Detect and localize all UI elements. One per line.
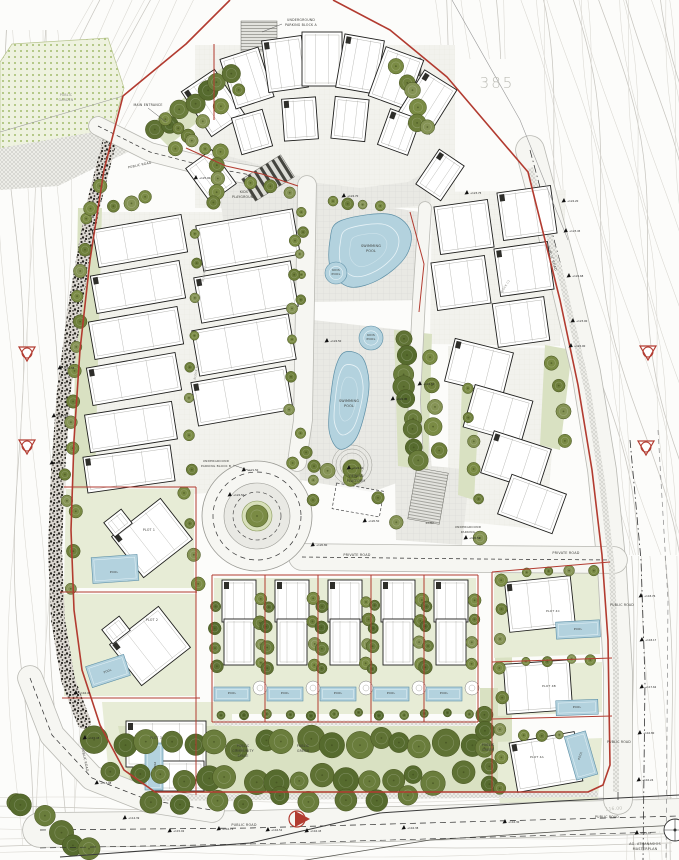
- tree-symbol-center: [191, 140, 193, 142]
- tree-symbol-center: [220, 105, 222, 107]
- plan-label: PUBLIC ROAD: [231, 823, 256, 827]
- elevation-value: +116.43: [310, 829, 322, 833]
- tree-symbol-center: [214, 628, 216, 630]
- tree-symbol-center: [365, 601, 367, 603]
- tree-symbol-center: [280, 741, 282, 743]
- plan-label: POOL: [110, 570, 119, 574]
- plan-label: PLOT 4C: [546, 609, 560, 613]
- plan-label: PLOT 1: [143, 528, 155, 532]
- masterplan-canvas: +125.00+124.70+123.75+124.50+124.50+124.…: [0, 0, 679, 860]
- tree-symbol-center: [473, 468, 475, 470]
- elevation-value: +123.00: [576, 319, 588, 323]
- stair-core: [264, 42, 270, 50]
- tree-symbol-center: [467, 387, 469, 389]
- tree-symbol-center: [365, 662, 367, 664]
- elevation-value: +116.79: [55, 461, 67, 465]
- stair-core: [224, 582, 229, 589]
- tree-symbol-center: [484, 730, 486, 732]
- tree-symbol-center: [72, 845, 74, 847]
- tree-symbol-center: [378, 715, 380, 717]
- elevation-value: +120.80: [316, 543, 328, 547]
- tree-symbol-center: [412, 774, 414, 776]
- plan-label: PLOT 2: [146, 618, 158, 622]
- tree-symbol-center: [412, 89, 414, 91]
- tree-symbol-center: [256, 781, 258, 783]
- tree-symbol-center: [368, 619, 370, 621]
- tree-symbol-center: [445, 742, 447, 744]
- tree-symbol-center: [266, 647, 268, 649]
- building-outline: [302, 32, 342, 86]
- plan-label: POOL: [228, 691, 237, 695]
- tree-symbol-center: [131, 203, 133, 205]
- tree-symbol-center: [208, 778, 210, 780]
- tree-symbol-center: [178, 109, 180, 111]
- tree-symbol-center: [467, 417, 469, 419]
- plan-label: POOL: [440, 691, 449, 695]
- tree-symbol-center: [321, 774, 323, 776]
- plan-label: MAIN ENTRANCE: [133, 103, 162, 107]
- tree-symbol-center: [204, 148, 206, 150]
- tree-symbol-center: [75, 510, 77, 512]
- tree-symbol-center: [488, 766, 490, 768]
- tree-symbol-center: [305, 452, 307, 454]
- tree-symbol-center: [191, 469, 193, 471]
- tree-symbol-center: [61, 832, 63, 834]
- stair-core: [507, 584, 513, 591]
- plan-label: AG. ATHANASIOS: [629, 842, 661, 846]
- tree-symbol-center: [299, 253, 301, 255]
- stair-core: [383, 582, 388, 589]
- tree-symbol-center: [242, 803, 244, 805]
- tree-symbol-center: [381, 737, 383, 739]
- plan-label: PUBLIC: [237, 744, 250, 748]
- elevation-value: +123.75: [470, 191, 482, 195]
- tree-symbol-center: [84, 249, 86, 251]
- tree-symbol-center: [188, 434, 190, 436]
- plan-label: PUBLIC ROAD: [595, 815, 619, 819]
- terrace-table: [465, 681, 479, 695]
- tree-symbol-center: [347, 203, 349, 205]
- plan-label: POOL: [366, 249, 376, 253]
- elevation-value: +123.45: [569, 229, 581, 233]
- tree-symbol-center: [313, 465, 315, 467]
- tree-symbol-center: [426, 606, 428, 608]
- tree-symbol-center: [159, 773, 161, 775]
- tree-symbol-center: [300, 211, 302, 213]
- building-outline: [431, 255, 491, 310]
- tree-symbol-center: [568, 570, 570, 572]
- elevation-value: +120.50: [469, 536, 481, 540]
- plan-label: PRIVATE ROAD: [343, 553, 370, 557]
- plan-label: POOL: [334, 691, 343, 695]
- elevation-value: +117.92: [57, 414, 69, 418]
- building-footprint: [381, 580, 415, 622]
- building-footprint: [434, 199, 494, 254]
- plan-label: PRIVATE ROAD: [552, 551, 579, 555]
- tree-symbol-center: [498, 667, 500, 669]
- tree-symbol-center: [427, 645, 429, 647]
- tree-symbol-center: [194, 233, 196, 235]
- tree-symbol-center: [150, 801, 152, 803]
- tree-symbol-center: [447, 712, 449, 714]
- tree-symbol-center: [293, 274, 295, 276]
- tree-symbol-center: [345, 780, 347, 782]
- tree-symbol-center: [291, 339, 293, 341]
- plan-label: RAMP: [426, 521, 435, 525]
- stair-core: [85, 458, 91, 466]
- plan-label: KIDS: [240, 190, 248, 194]
- elevation-value: +116.24: [642, 778, 654, 782]
- tree-symbol-center: [369, 780, 371, 782]
- tree-symbol-center: [74, 370, 76, 372]
- elevation-value: +120.50: [368, 519, 380, 523]
- tree-symbol-center: [321, 627, 323, 629]
- tree-symbol-center: [230, 73, 232, 75]
- tree-symbol-center: [72, 401, 74, 403]
- elevation-value: +122.00: [574, 344, 586, 348]
- tree-symbol-center: [216, 191, 218, 193]
- tree-symbol-center: [327, 470, 329, 472]
- building-outline: [331, 96, 369, 141]
- tree-symbol-center: [523, 734, 525, 736]
- elevation-value: +124.50: [352, 466, 364, 470]
- tree-symbol-center: [279, 795, 281, 797]
- tree-symbol-center: [379, 205, 381, 207]
- north-arrow-icon: [674, 829, 677, 832]
- building-footprint: [436, 619, 466, 665]
- tree-symbol-center: [207, 90, 209, 92]
- tree-symbol-center: [484, 714, 486, 716]
- tree-symbol-center: [202, 120, 204, 122]
- tree-symbol-center: [474, 599, 476, 601]
- building-footprint: [431, 255, 491, 310]
- plan-label: GREEN: [482, 748, 495, 752]
- elevation-value: +124.68: [572, 274, 584, 278]
- tree-symbol-center: [359, 744, 361, 746]
- tree-symbol-center: [432, 426, 434, 428]
- tree-symbol-center: [216, 665, 218, 667]
- tree-symbol-center: [372, 628, 374, 630]
- tree-symbol-center: [314, 643, 316, 645]
- tree-symbol-center: [294, 240, 296, 242]
- tree-symbol-center: [70, 421, 72, 423]
- elevation-value: +115.87: [640, 831, 652, 835]
- building-footprint: [302, 32, 342, 86]
- building-outline: [436, 619, 466, 665]
- tree-symbol-center: [113, 205, 115, 207]
- tree-symbol-center: [266, 667, 268, 669]
- building-outline: [492, 297, 550, 348]
- plan-label: UNDERGROUND: [455, 525, 482, 529]
- plan-label: PUBLIC: [60, 93, 73, 97]
- tree-symbol-center: [216, 81, 218, 83]
- stair-core: [436, 582, 441, 589]
- tree-symbol-center: [471, 663, 473, 665]
- tree-symbol-center: [541, 735, 543, 737]
- tree-symbol-center: [374, 604, 376, 606]
- tree-symbol-center: [417, 107, 419, 109]
- tree-symbol-center: [195, 103, 197, 105]
- plan-label: 385: [480, 74, 515, 92]
- tree-symbol-center: [189, 523, 191, 525]
- plan-label: PLAYGROUND: [232, 195, 256, 199]
- tree-symbol-center: [333, 713, 335, 715]
- tree-symbol-center: [499, 638, 501, 640]
- tree-symbol-center: [429, 356, 431, 358]
- tree-symbol-center: [376, 800, 378, 802]
- tree-symbol-center: [144, 196, 146, 198]
- stair-core: [128, 723, 133, 730]
- tree-symbol-center: [213, 741, 215, 743]
- tree-symbol-center: [501, 608, 503, 610]
- tree-symbol-center: [188, 397, 190, 399]
- tree-symbol-center: [66, 500, 68, 502]
- tree-symbol-center: [197, 583, 199, 585]
- tree-symbol-center: [474, 619, 476, 621]
- tree-symbol-center: [501, 697, 503, 699]
- plan-label: PUBLIC: [482, 743, 495, 747]
- tree-symbol-center: [250, 182, 252, 184]
- tree-symbol-center: [214, 647, 216, 649]
- plan-label: PUBLIC ROAD: [607, 740, 631, 744]
- tree-symbol-center: [499, 729, 501, 731]
- tree-symbol-center: [425, 666, 427, 668]
- tree-symbol-center: [70, 588, 72, 590]
- tree-symbol-center: [551, 362, 553, 364]
- tree-symbol-center: [471, 641, 473, 643]
- building-footprint: [497, 185, 557, 240]
- building-footprint: [282, 97, 319, 141]
- elevation-value: +124.50: [330, 339, 342, 343]
- tree-symbol-center: [427, 126, 429, 128]
- elevation-value: +119.08: [63, 366, 75, 370]
- building-footprint: [383, 619, 413, 665]
- tree-symbol-center: [269, 185, 271, 187]
- tree-symbol-center: [312, 621, 314, 623]
- tree-symbol-center: [403, 338, 405, 340]
- tree-symbol-center: [145, 741, 147, 743]
- tree-symbol-center: [438, 450, 440, 452]
- tree-symbol-center: [215, 606, 217, 608]
- tree-symbol-center: [313, 664, 315, 666]
- tree-symbol-center: [424, 625, 426, 627]
- elevation-value: +117.62: [645, 685, 657, 689]
- tree-symbol-center: [298, 780, 300, 782]
- tree-symbol-center: [301, 274, 303, 276]
- tree-symbol-center: [194, 297, 196, 299]
- tree-symbol-center: [312, 479, 314, 481]
- plan-label: PLATFORM: [347, 479, 366, 483]
- elevation-value: +122.50: [233, 493, 245, 497]
- tree-symbol-center: [434, 406, 436, 408]
- tree-symbol-center: [79, 321, 81, 323]
- plan-label: POOL: [153, 762, 157, 771]
- elevation-value: +124.50: [423, 382, 435, 386]
- tree-symbol-center: [183, 492, 185, 494]
- tree-symbol-center: [175, 148, 177, 150]
- tree-symbol-center: [393, 780, 395, 782]
- tree-symbol-center: [194, 335, 196, 337]
- tree-symbol-center: [310, 738, 312, 740]
- elevation-value: +121.50: [247, 468, 259, 472]
- site-masterplan-drawing: +125.00+124.70+123.75+124.50+124.50+124.…: [0, 0, 679, 860]
- tree-symbol-center: [196, 262, 198, 264]
- plan-label: UNDERGROUND: [287, 18, 315, 22]
- tree-symbol-center: [268, 606, 270, 608]
- tree-symbol-center: [165, 118, 167, 120]
- elevation-value: +113.98: [100, 781, 112, 785]
- plan-label: POOL: [366, 337, 375, 341]
- building-outline: [434, 199, 494, 254]
- plan-label: POOL: [344, 404, 354, 408]
- tree-symbol-center: [413, 447, 415, 449]
- tree-symbol-center: [292, 462, 294, 464]
- tree-symbol-center: [345, 799, 347, 801]
- tree-symbol-center: [213, 202, 215, 204]
- tree-symbol-center: [85, 218, 87, 220]
- plan-label: PLOT 4B: [542, 684, 556, 688]
- stair-core: [496, 250, 502, 258]
- building-footprint: [331, 96, 369, 141]
- tree-symbol-center: [417, 460, 419, 462]
- tree-symbol-center: [266, 713, 268, 715]
- plan-label: POOL: [573, 705, 582, 709]
- elevation-value: +124.70: [347, 194, 359, 198]
- tree-symbol-center: [472, 744, 474, 746]
- plan-label: GARDEN: [59, 98, 74, 102]
- tree-symbol-center: [220, 151, 222, 153]
- tree-symbol-center: [403, 386, 405, 388]
- tree-symbol-center: [377, 497, 379, 499]
- tree-symbol-center: [64, 474, 66, 476]
- elevation-value: +114.39: [128, 816, 140, 820]
- tree-symbol-center: [289, 192, 291, 194]
- tree-symbol-center: [321, 648, 323, 650]
- building-outline: [277, 619, 307, 665]
- tree-symbol-center: [489, 783, 491, 785]
- tree-symbol-center: [372, 645, 374, 647]
- tree-symbol-center: [473, 441, 475, 443]
- elevation-value: +124.00: [396, 397, 408, 401]
- tree-symbol-center: [177, 127, 179, 129]
- tree-symbol-center: [310, 715, 312, 717]
- elevation-value: +116.52: [271, 828, 283, 832]
- elevation-value: +116.74: [222, 827, 234, 831]
- plan-label: PARKING BLOCK A: [285, 23, 317, 27]
- tree-symbol-center: [589, 659, 591, 661]
- tree-symbol-center: [416, 122, 418, 124]
- tree-symbol-center: [79, 270, 81, 272]
- tree-symbol-center: [321, 606, 323, 608]
- plan-label: MASTERPLAN: [633, 847, 658, 851]
- tree-symbol-center: [420, 620, 422, 622]
- plan-label: POOL: [387, 691, 396, 695]
- tree-symbol-center: [548, 570, 550, 572]
- tree-symbol-center: [432, 782, 434, 784]
- tree-symbol-center: [403, 714, 405, 716]
- building-footprint: [277, 619, 307, 665]
- tree-symbol-center: [179, 804, 181, 806]
- tree-symbol-center: [418, 641, 420, 643]
- villa-pool: [91, 554, 139, 583]
- stair-core: [284, 101, 289, 108]
- tree-symbol-center: [90, 208, 92, 210]
- elevation-value: +116.80: [643, 731, 655, 735]
- tree-symbol-center: [563, 411, 565, 413]
- tree-symbol-center: [501, 757, 503, 759]
- tree-symbol-center: [593, 570, 595, 572]
- elevation-value: +115.43: [88, 736, 100, 740]
- plan-label: POOL: [331, 272, 340, 276]
- tree-symbol-center: [291, 308, 293, 310]
- tree-symbol-center: [288, 409, 290, 411]
- tree-symbol-center: [171, 741, 173, 743]
- tree-symbol-center: [154, 129, 156, 131]
- tree-symbol-center: [398, 742, 400, 744]
- plan-label: VIEWING: [348, 474, 364, 478]
- tree-symbol-center: [44, 815, 46, 817]
- tree-symbol-center: [266, 740, 268, 742]
- tree-symbol-center: [321, 668, 323, 670]
- tree-symbol-center: [332, 200, 334, 202]
- tree-symbol-center: [290, 376, 292, 378]
- tree-symbol-center: [500, 579, 502, 581]
- tree-symbol-center: [260, 662, 262, 664]
- tree-symbol-center: [395, 521, 397, 523]
- building-footprint: [492, 297, 550, 348]
- tree-symbol-center: [139, 773, 141, 775]
- elevation-value: +115.02: [173, 829, 185, 833]
- tree-symbol-center: [403, 374, 405, 376]
- building-footprint: [224, 619, 254, 665]
- tree-symbol-center: [526, 572, 528, 574]
- tree-symbol-center: [331, 744, 333, 746]
- plan-label: UNDERGROUND: [203, 459, 230, 463]
- tree-symbol-center: [468, 713, 470, 715]
- tree-symbol-center: [75, 346, 77, 348]
- tree-symbol-center: [300, 432, 302, 434]
- tree-symbol-center: [412, 428, 414, 430]
- tree-symbol-center: [407, 794, 409, 796]
- elevation-value: +116.43: [79, 691, 91, 695]
- tree-symbol-center: [216, 164, 218, 166]
- tree-symbol-center: [412, 418, 414, 420]
- tree-symbol-center: [290, 714, 292, 716]
- tree-symbol-center: [406, 354, 408, 356]
- tree-symbol-center: [109, 771, 111, 773]
- tree-symbol-center: [88, 848, 90, 850]
- tree-symbol-center: [220, 714, 222, 716]
- tree-symbol-center: [238, 89, 240, 91]
- plan-label: PLOT 4A: [530, 755, 545, 759]
- tree-symbol-center: [125, 744, 127, 746]
- elevation-value: +116.38: [407, 826, 419, 830]
- plan-label: SWIMMING: [339, 399, 359, 403]
- tree-symbol-center: [362, 204, 364, 206]
- stair-core: [277, 582, 282, 589]
- plan-label: PLOT 3: [150, 736, 162, 740]
- building-outline: [383, 619, 413, 665]
- elevation-value: +125.00: [199, 176, 211, 180]
- tree-symbol-center: [300, 299, 302, 301]
- tree-symbol-center: [564, 440, 566, 442]
- tree-symbol-center: [20, 804, 22, 806]
- tree-symbol-center: [308, 801, 310, 803]
- plan-label: SWIMMING: [361, 244, 381, 248]
- tree-symbol-center: [302, 231, 304, 233]
- tree-symbol-center: [312, 499, 314, 501]
- plan-label: SPACE: [237, 754, 248, 758]
